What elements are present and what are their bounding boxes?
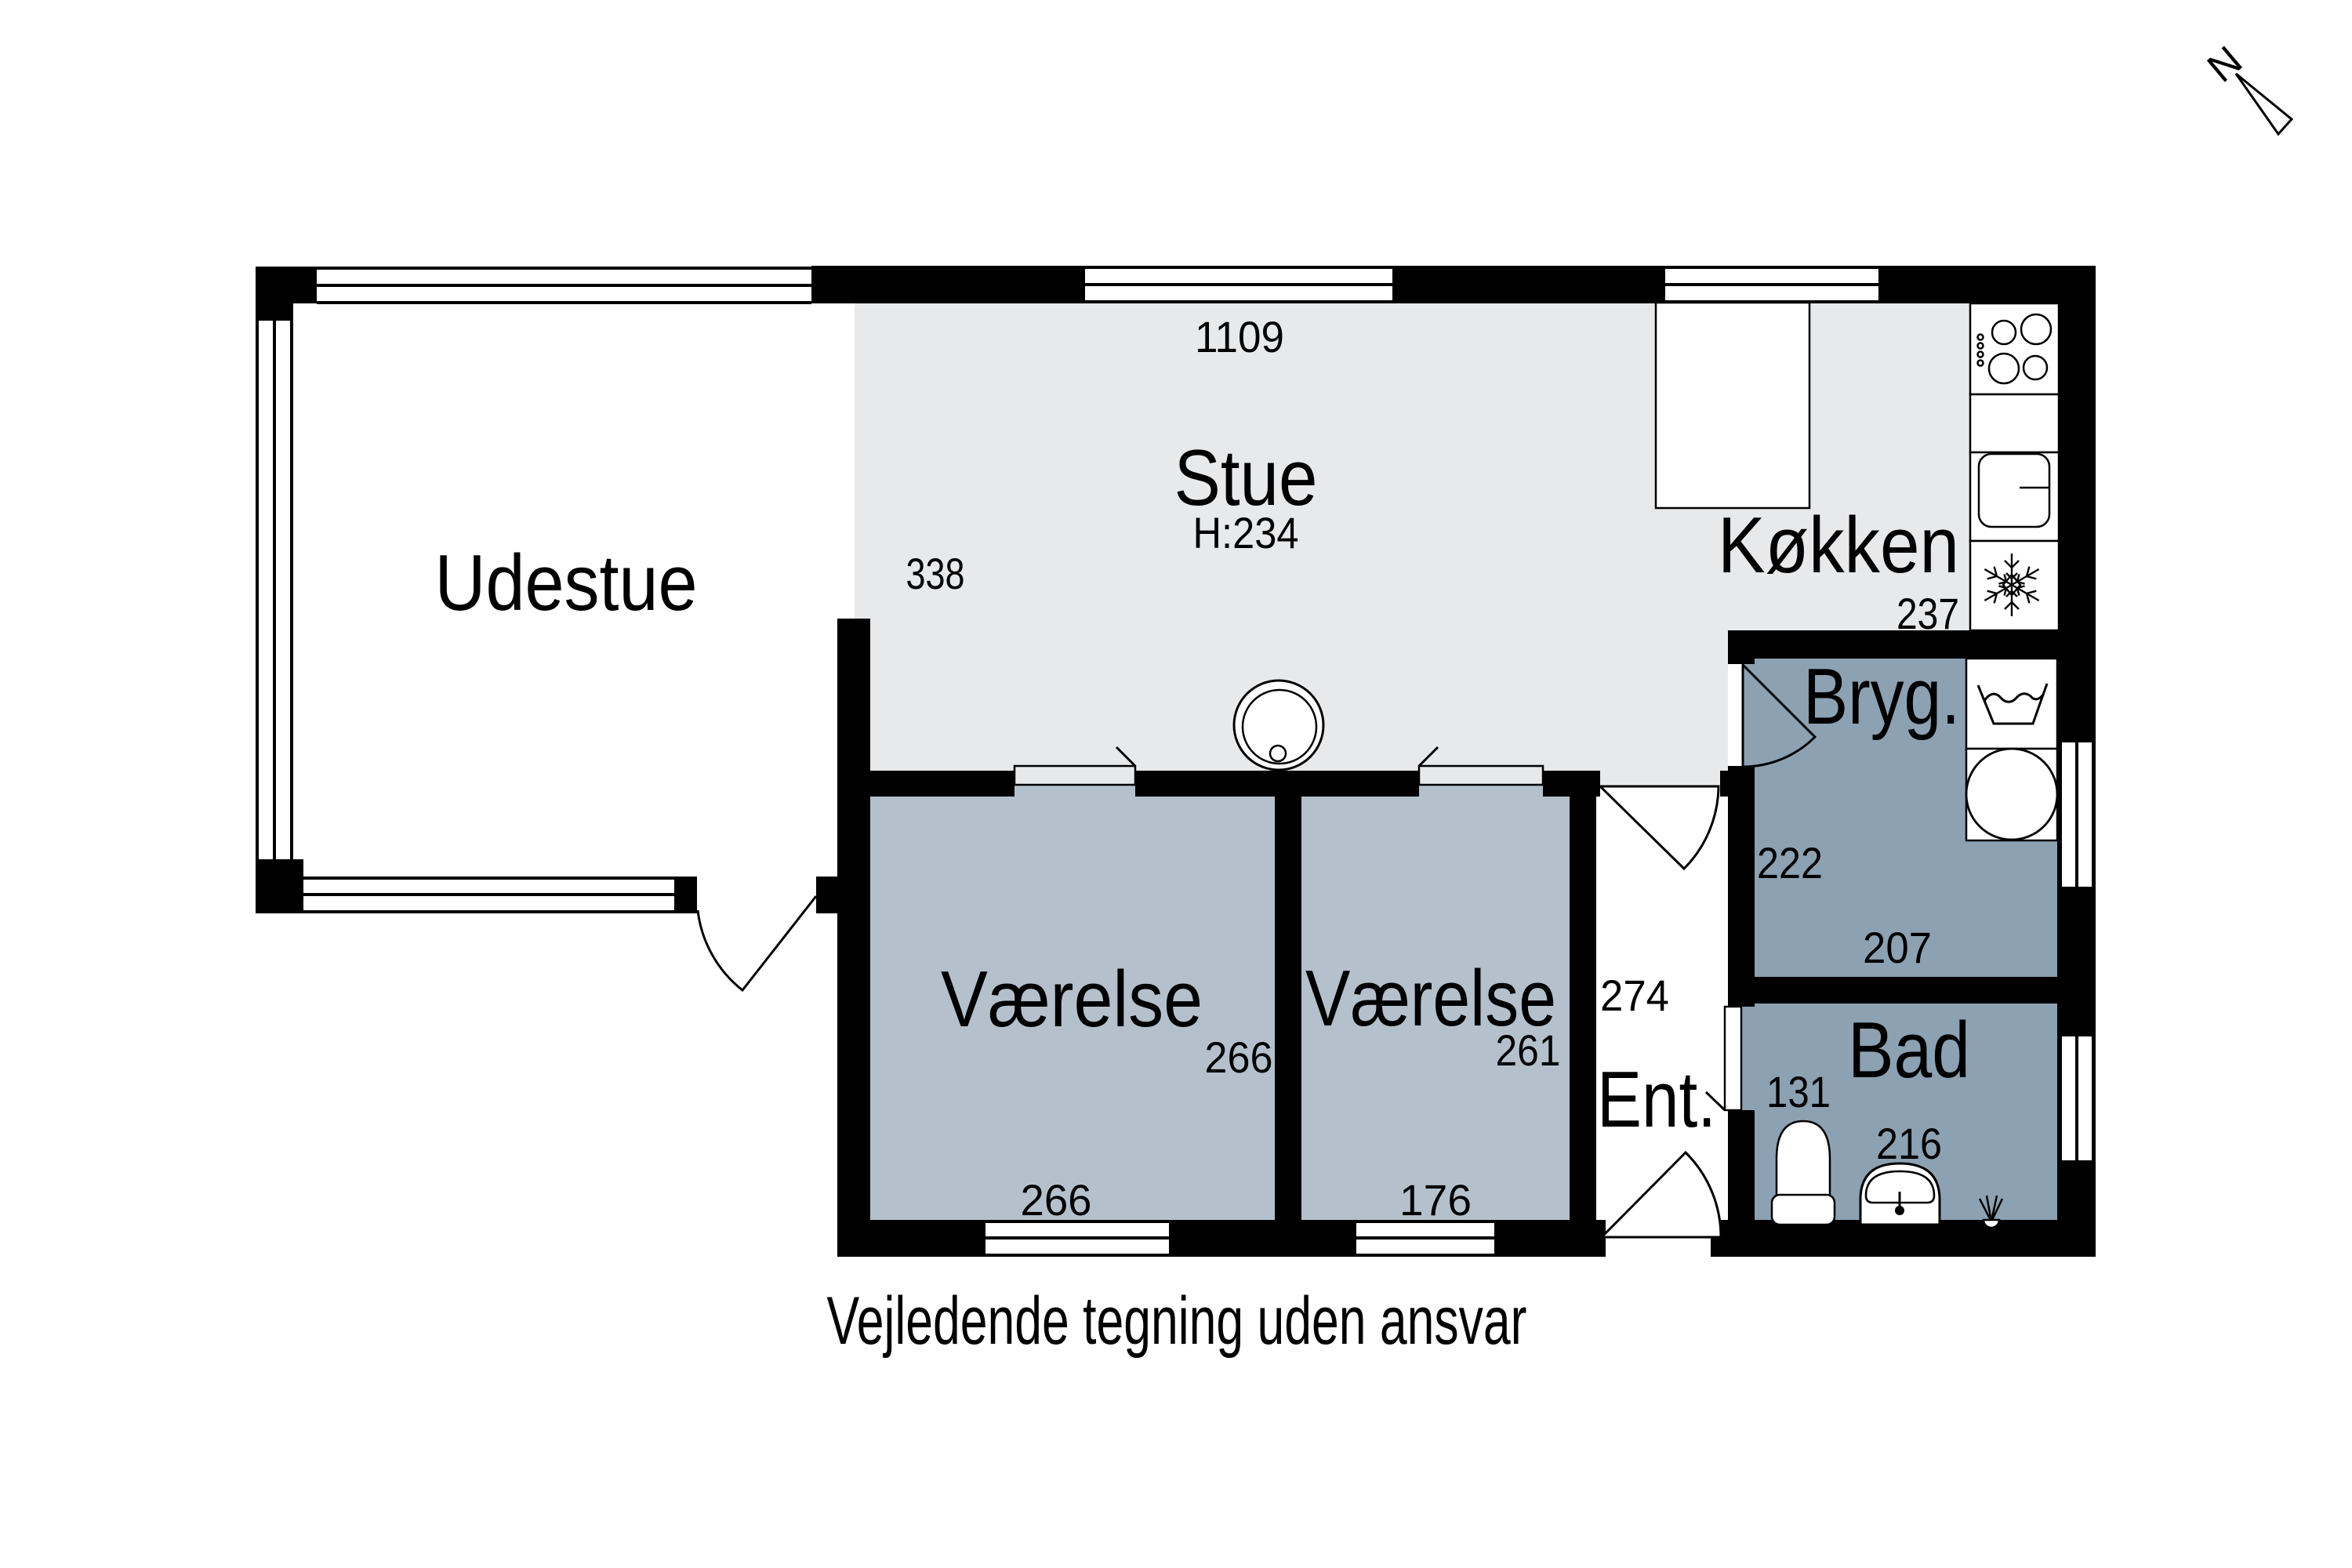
svg-text:Vejledende tegning uden ansvar: Vejledende tegning uden ansvar [827, 1283, 1527, 1359]
svg-text:Ent.: Ent. [1597, 1056, 1716, 1144]
svg-text:H:234: H:234 [1193, 508, 1299, 557]
svg-text:1109: 1109 [1195, 312, 1284, 361]
svg-text:237: 237 [1896, 589, 1959, 638]
svg-text:Køkken: Køkken [1718, 502, 1959, 590]
svg-text:338: 338 [906, 549, 965, 598]
svg-text:261: 261 [1496, 1025, 1561, 1075]
svg-text:131: 131 [1766, 1067, 1831, 1116]
svg-text:176: 176 [1399, 1175, 1472, 1225]
svg-text:274: 274 [1600, 971, 1669, 1020]
svg-text:222: 222 [1757, 838, 1823, 887]
svg-text:Bryg.: Bryg. [1803, 653, 1960, 741]
svg-text:Bad: Bad [1848, 1007, 1970, 1094]
svg-text:216: 216 [1876, 1119, 1942, 1168]
svg-text:Udestue: Udestue [435, 539, 698, 627]
svg-text:266: 266 [1021, 1175, 1092, 1225]
svg-text:207: 207 [1863, 923, 1932, 972]
svg-text:266: 266 [1205, 1033, 1273, 1082]
svg-text:Værelse: Værelse [941, 956, 1203, 1044]
